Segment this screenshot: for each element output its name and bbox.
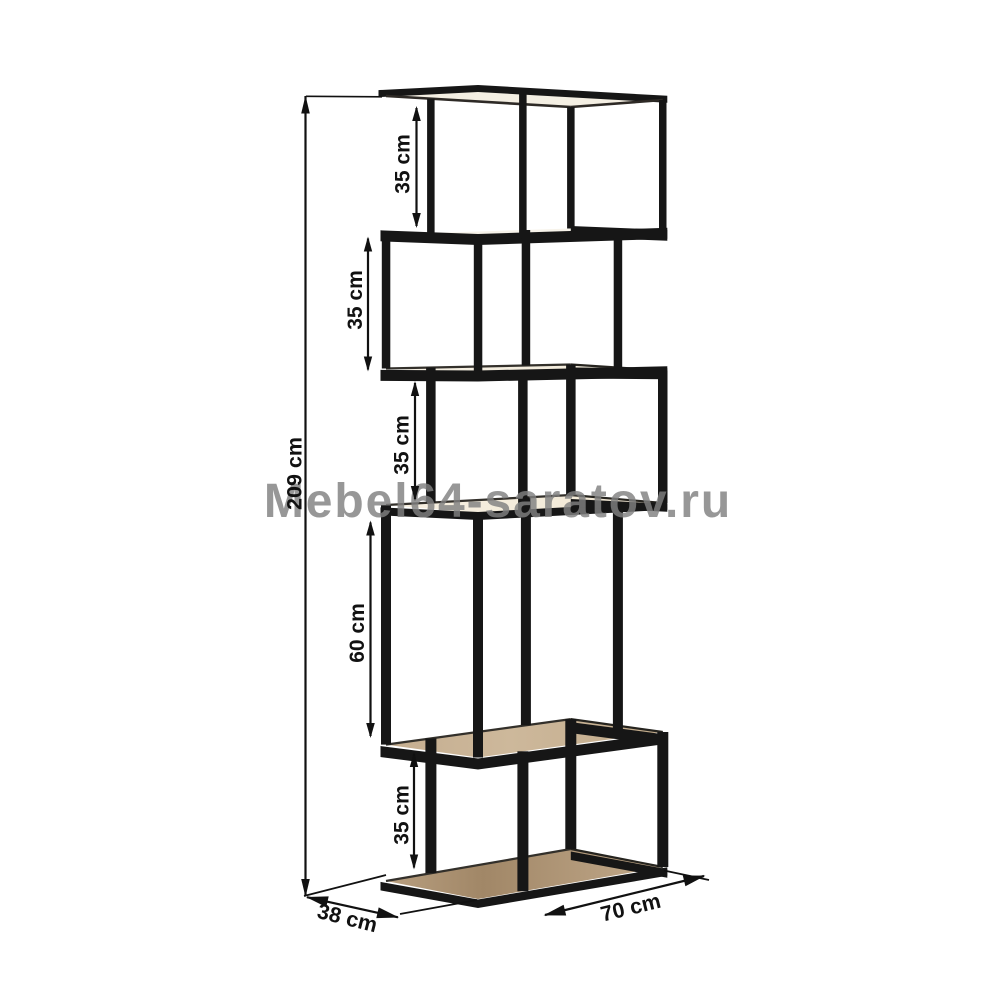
svg-text:35 cm: 35 cm [344, 270, 367, 330]
svg-text:35 cm: 35 cm [391, 415, 414, 475]
svg-text:35 cm: 35 cm [392, 134, 415, 194]
svg-text:209 cm: 209 cm [283, 437, 307, 510]
svg-text:60 cm: 60 cm [346, 603, 369, 663]
svg-text:35 cm: 35 cm [391, 785, 414, 845]
svg-text:Mebel64-saratov.ru: Mebel64-saratov.ru [264, 475, 732, 528]
